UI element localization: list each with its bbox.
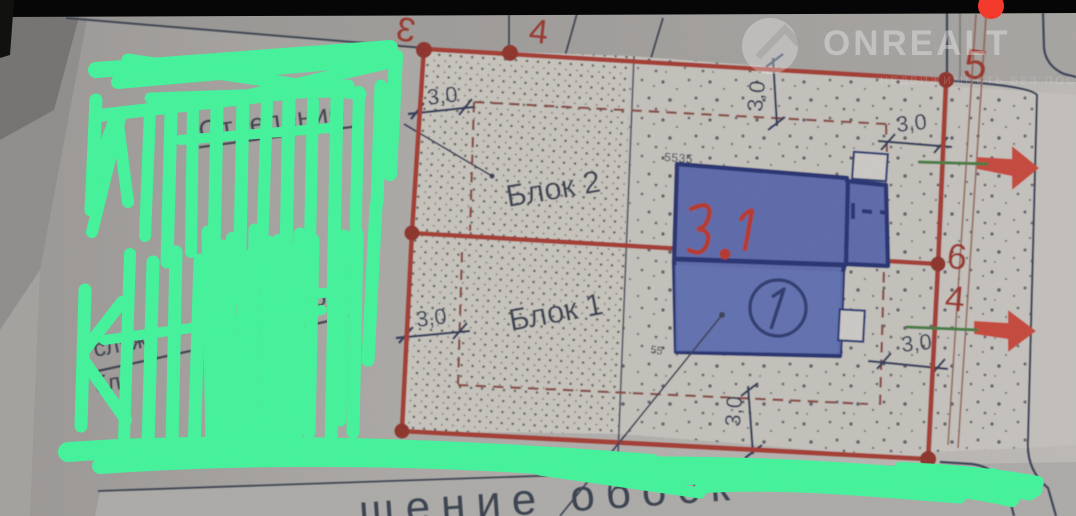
svg-text:ONREALT: ONREALT [823, 24, 1011, 63]
svg-text:НЕДВИЖИМОСТЬ БЕЗ ПОСРЕДНИКОВ: НЕДВИЖИМОСТЬ БЕЗ ПОСРЕДНИКОВ [880, 75, 1076, 87]
